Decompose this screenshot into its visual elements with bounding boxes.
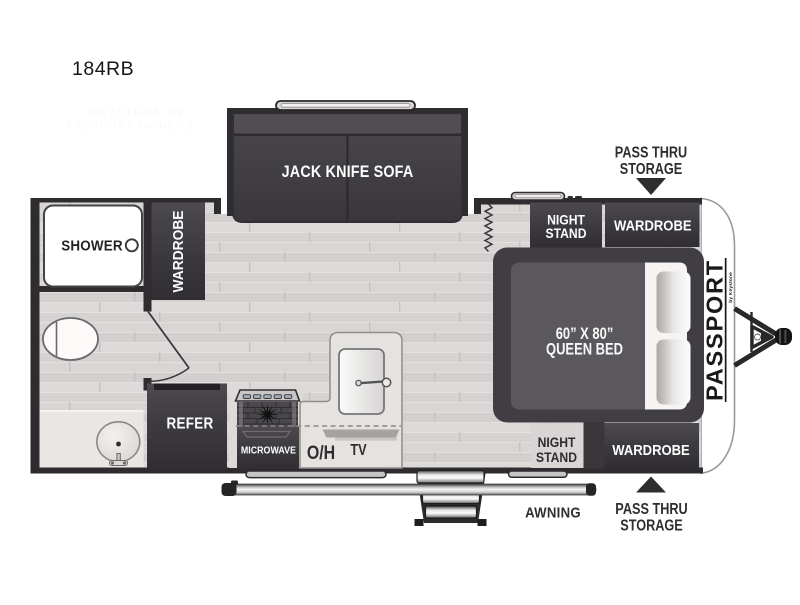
svg-text:NIGHT: NIGHT [538, 434, 576, 450]
svg-text:REFER: REFER [167, 415, 214, 432]
svg-text:PASS THRU: PASS THRU [615, 501, 687, 518]
svg-text:STORAGE: STORAGE [620, 161, 683, 178]
svg-text:KEYSTONE RV: KEYSTONE RV [89, 105, 186, 119]
svg-text:STAND: STAND [545, 225, 586, 241]
svg-text:TV: TV [350, 442, 367, 460]
svg-text:WARDROBE: WARDROBE [614, 217, 692, 234]
svg-text:SHOWER: SHOWER [61, 237, 123, 254]
svg-text:WARDROBE: WARDROBE [171, 210, 188, 292]
svg-text:PASS THRU: PASS THRU [615, 144, 687, 161]
svg-text:WARDROBE: WARDROBE [612, 441, 690, 458]
svg-text:by Keystone: by Keystone [728, 272, 734, 303]
svg-text:STORAGE: STORAGE [620, 517, 683, 534]
svg-text:AWNING: AWNING [525, 504, 581, 521]
svg-text:MICROWAVE: MICROWAVE [241, 445, 296, 457]
svg-text:STAND: STAND [536, 449, 577, 465]
svg-text:PASSPORT: PASSPORT [702, 259, 728, 401]
svg-text:O/H: O/H [307, 442, 335, 464]
svg-text:JACK KNIFE SOFA: JACK KNIFE SOFA [282, 163, 414, 181]
svg-text:PASSPORT OWNERS: PASSPORT OWNERS [66, 120, 193, 132]
svg-text:QUEEN BED: QUEEN BED [546, 341, 623, 359]
svg-text:184RB: 184RB [72, 58, 134, 80]
